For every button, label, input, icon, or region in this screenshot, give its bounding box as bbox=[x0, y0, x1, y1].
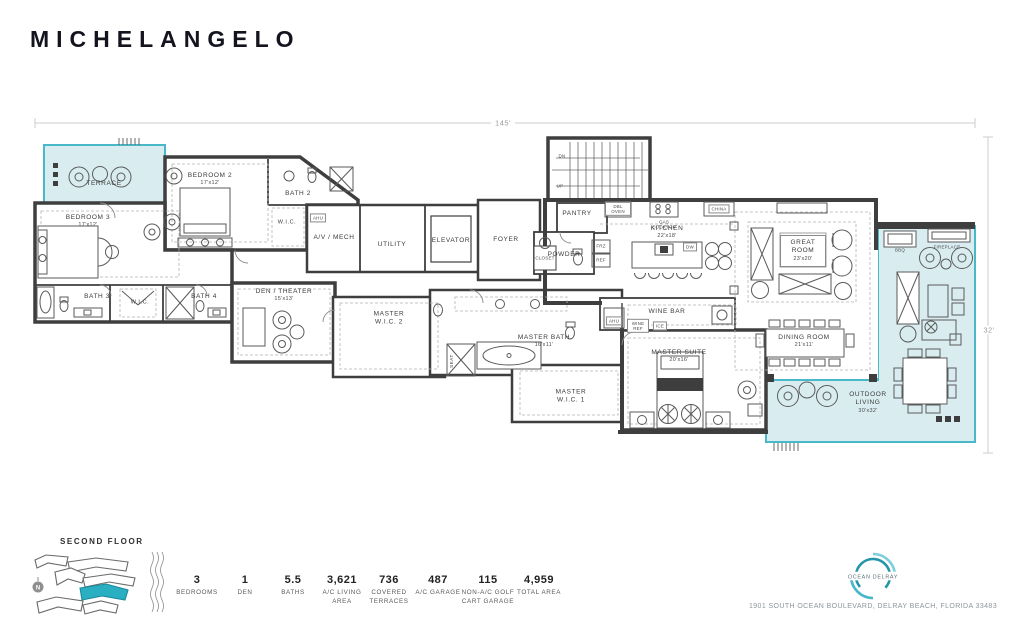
room-label-terrace: TERRACE bbox=[86, 180, 121, 188]
dimension-width-label: 145' bbox=[491, 119, 515, 128]
site-key-plan: N bbox=[26, 548, 176, 622]
stairs-up-label: UP bbox=[557, 183, 564, 188]
ref-label: REF bbox=[596, 257, 606, 262]
gas-cooktop-label: GAS COOKTOP bbox=[648, 220, 680, 231]
wine-ref-label: WINE REF bbox=[627, 319, 649, 333]
room-label-master-bath: MASTER BATH16'x11' bbox=[518, 334, 570, 350]
room-label-master-wic2: MASTER W.I.C. 2 bbox=[366, 311, 412, 328]
fireplace-label: FIREPLACE bbox=[934, 244, 961, 249]
svg-text:N: N bbox=[36, 586, 40, 592]
room-label-utility: UTILITY bbox=[378, 241, 406, 249]
room-label-outdoor-living: OUTDOOR LIVING30'x32' bbox=[843, 391, 893, 415]
room-label-wine-bar: WINE BAR bbox=[649, 308, 686, 316]
room-label-bath3: BATH 3 bbox=[84, 293, 110, 301]
room-label-bath2: BATH 2 bbox=[285, 190, 311, 198]
room-label-master-wic1: MASTER W.I.C. 1 bbox=[548, 389, 594, 406]
ahu-label-2: AHU bbox=[606, 316, 622, 325]
room-label-bedroom2: BEDROOM 217'x12' bbox=[188, 172, 232, 188]
dimension-depth-label: 32' bbox=[979, 326, 998, 335]
stat-total-area: 4,959TOTAL AREA bbox=[511, 574, 567, 598]
svg-text:OCEAN DELRAY: OCEAN DELRAY bbox=[848, 575, 898, 581]
room-label-great-room: GREAT ROOM23'x20' bbox=[780, 235, 826, 267]
ice-label: ICE bbox=[653, 321, 667, 330]
floor-plan-graphic bbox=[0, 0, 1024, 622]
stairs-dn-label: DN bbox=[559, 153, 566, 158]
stat-baths: 5.5BATHS bbox=[265, 574, 321, 598]
room-label-bath4: BATH 4 bbox=[191, 293, 217, 301]
room-label-dining-room: DINING ROOM21'x11' bbox=[778, 334, 829, 350]
brochure-page: MICHELANGELO bbox=[0, 0, 1024, 622]
room-label-master-suite: MASTER SUITE20'x16' bbox=[651, 349, 706, 365]
seat-label: SEAT bbox=[449, 354, 455, 368]
room-label-av-mech: A/V / MECH bbox=[313, 234, 354, 242]
room-label-closet: CLOSET bbox=[535, 255, 554, 260]
room-label-den-theater: DEN / THEATER15'x13' bbox=[256, 288, 313, 304]
bbq-label: BBQ bbox=[895, 247, 905, 252]
key-plan-title: SECOND FLOOR bbox=[60, 537, 144, 546]
north-arrow-icon: N bbox=[33, 577, 44, 593]
highlighted-unit bbox=[80, 584, 128, 600]
address-line: 1901 SOUTH OCEAN BOULEVARD, DELRAY BEACH… bbox=[749, 603, 997, 610]
room-label-bedroom3: BEDROOM 317'x12' bbox=[66, 214, 110, 230]
room-label-wic-bedroom3: W.I.C. bbox=[131, 299, 150, 306]
room-label-wic-bedroom2: W.I.C. bbox=[278, 219, 297, 226]
ahu-label-1: AHU bbox=[310, 213, 326, 222]
room-label-foyer: FOYER bbox=[493, 236, 518, 244]
ocean-delray-logo: OCEAN DELRAY bbox=[838, 544, 908, 608]
stat-ac-garage: 487A/C GARAGE bbox=[410, 574, 466, 598]
stat-golf-cart-garage: 115NON-A/C GOLF CART GARAGE bbox=[460, 574, 516, 606]
room-label-pantry: PANTRY bbox=[562, 210, 591, 218]
china-label: CHINA bbox=[708, 204, 729, 213]
frz-label: FRZ bbox=[596, 243, 605, 248]
ocean-waves-icon bbox=[151, 552, 164, 612]
room-label-elevator: ELEVATOR bbox=[432, 237, 470, 245]
dw-label: DW bbox=[683, 242, 697, 251]
stat-covered-terraces: 736COVERED TERRACES bbox=[361, 574, 417, 606]
dbl-oven-label: DBL OVEN bbox=[605, 202, 631, 216]
